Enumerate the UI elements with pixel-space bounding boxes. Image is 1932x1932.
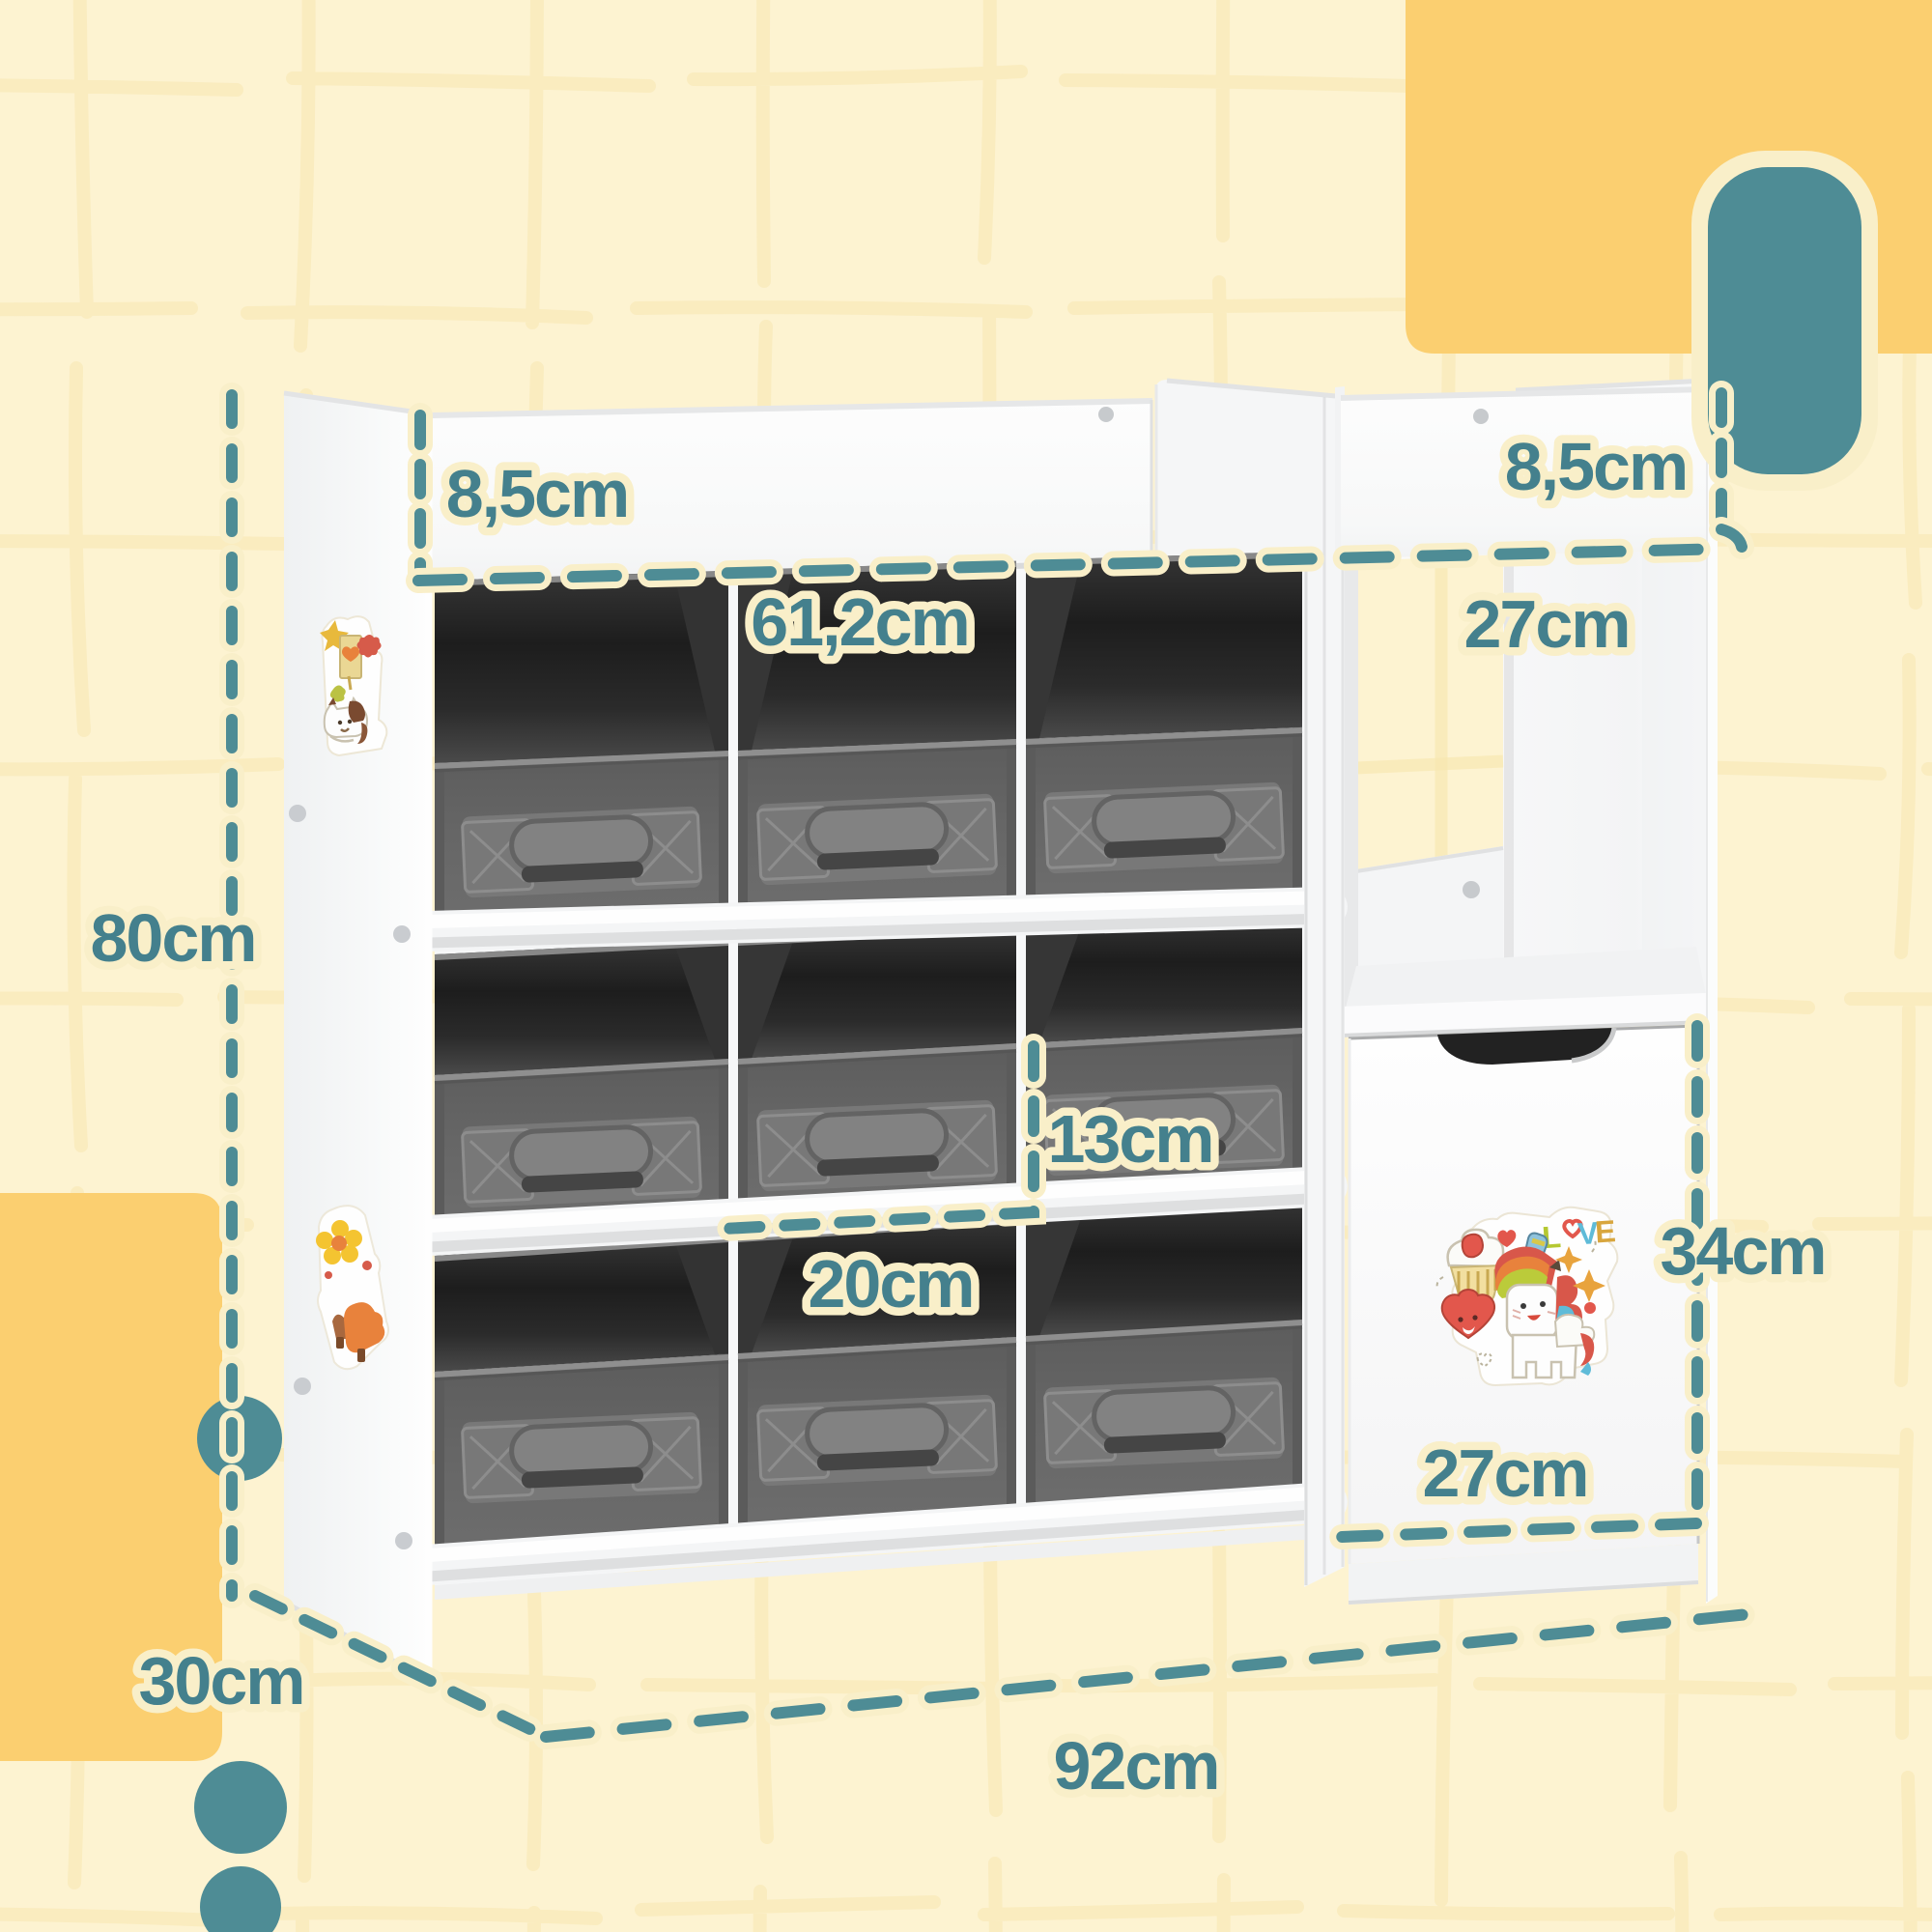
svg-text:8,5cm: 8,5cm xyxy=(1505,429,1687,504)
svg-text:92cm: 92cm xyxy=(1053,1728,1218,1804)
svg-text:20cm: 20cm xyxy=(808,1246,973,1321)
svg-text:E: E xyxy=(1594,1213,1617,1249)
svg-text:8,5cm: 8,5cm xyxy=(446,456,628,531)
svg-text:30cm: 30cm xyxy=(138,1643,303,1719)
svg-text:61,2cm: 61,2cm xyxy=(751,584,968,660)
svg-text:27cm: 27cm xyxy=(1422,1435,1587,1511)
svg-text:27cm: 27cm xyxy=(1463,586,1629,662)
svg-text:80cm: 80cm xyxy=(90,900,255,976)
svg-text:13cm: 13cm xyxy=(1047,1101,1212,1177)
svg-text:34cm: 34cm xyxy=(1660,1213,1825,1289)
